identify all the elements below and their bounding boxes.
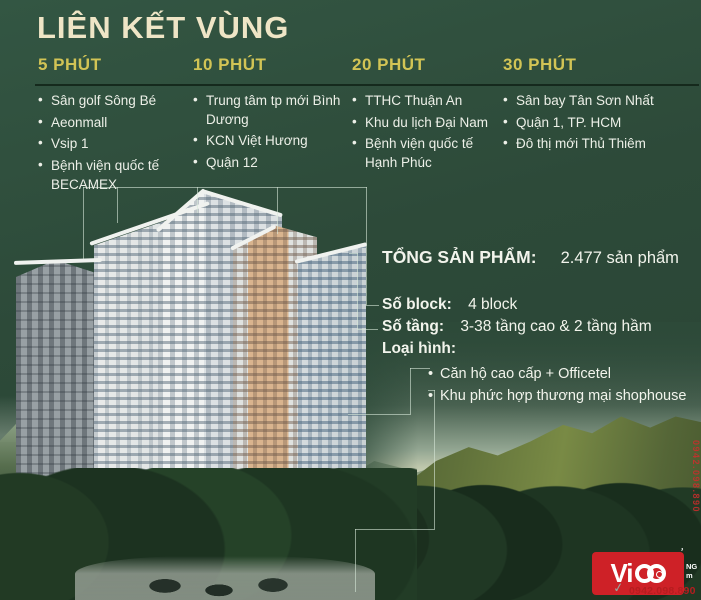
list-item: Khu phức hợp thương mại shophouse (428, 385, 694, 407)
phone-number: 0942.098.890 (629, 585, 696, 597)
column-list: Sân golf Sông Bé Aeonmall Vsip 1 Bệnh vi… (38, 92, 190, 194)
column-header: 30 PHÚT (503, 55, 699, 75)
project-summary-panel: TỔNG SẢN PHẨM: 2.477 sản phẩm Số block: … (382, 247, 694, 407)
list-item: Khu du lịch Đại Nam (352, 114, 502, 133)
column-header: 20 PHÚT (352, 55, 502, 75)
connector-line (357, 253, 358, 329)
travel-time-column-10min: 10 PHÚT Trung tâm tp mới Bình Dương KCN … (193, 55, 347, 176)
list-item: Quận 12 (193, 154, 347, 173)
list-item: Aeonmall (38, 114, 190, 133)
connector-line (366, 187, 367, 305)
total-products-value: 2.477 sản phẩm (561, 249, 679, 268)
property-type-label: Loại hình: (382, 340, 456, 357)
block-count-row: Số block: 4 block (382, 297, 694, 313)
list-item: Sân golf Sông Bé (38, 92, 190, 111)
travel-time-column-20min: 20 PHÚT TTHC Thuận An Khu du lịch Đại Na… (352, 55, 502, 176)
swoosh-icon: ✓ (612, 579, 625, 596)
column-list: Sân bay Tân Sơn Nhất Quận 1, TP. HCM Đô … (503, 92, 699, 154)
connector-line (83, 187, 84, 259)
travel-time-column-5min: 5 PHÚT Sân golf Sông Bé Aeonmall Vsip 1 … (38, 55, 190, 197)
clipped-side-text: NG m (686, 562, 701, 580)
connector-line (434, 390, 435, 529)
page-title: LIÊN KẾT VÙNG (37, 10, 289, 46)
travel-time-column-30min: 30 PHÚT Sân bay Tân Sơn Nhất Quận 1, TP.… (503, 55, 699, 157)
infographic-canvas: LIÊN KẾT VÙNG 5 PHÚT Sân golf Sông Bé Ae… (0, 0, 701, 600)
floor-count-row: Số tầng: 3-38 tầng cao & 2 tầng hầm (382, 319, 694, 335)
connector-line (366, 305, 379, 306)
connector-line (348, 414, 411, 415)
column-header: 5 PHÚT (38, 55, 190, 75)
list-item: KCN Việt Hương (193, 132, 347, 151)
connector-line (197, 187, 198, 213)
vico-rings-icon (635, 564, 666, 583)
column-header: 10 PHÚT (193, 55, 347, 75)
list-item: Đô thị mới Thủ Thiêm (503, 135, 699, 154)
block-count-label: Số block: (382, 296, 452, 313)
plaza-road (75, 556, 375, 600)
connector-line (355, 529, 435, 530)
total-products-label: TỔNG SẢN PHẨM: (382, 247, 537, 268)
list-item: Căn hộ cao cấp + Officetel (428, 363, 694, 385)
floor-count-label: Số tầng: (382, 318, 444, 335)
connector-line (355, 529, 356, 592)
connector-line (357, 329, 378, 330)
edge-phone-number: 0942.098.890 (691, 440, 701, 513)
block-count-value: 4 block (468, 296, 517, 313)
column-list: TTHC Thuận An Khu du lịch Đại Nam Bệnh v… (352, 92, 502, 173)
connector-line (277, 187, 278, 234)
list-item: TTHC Thuận An (352, 92, 502, 111)
list-item: Quận 1, TP. HCM (503, 114, 699, 133)
list-item: Vsip 1 (38, 135, 190, 154)
list-item: Bệnh viện quốc tế BECAMEX (38, 157, 190, 194)
list-item: Bệnh viện quốc tế Hạnh Phúc (352, 135, 502, 172)
total-products-row: TỔNG SẢN PHẨM: 2.477 sản phẩm (382, 247, 694, 268)
column-list: Trung tâm tp mới Bình Dương KCN Việt Hươ… (193, 92, 347, 173)
floor-count-value: 3-38 tầng cao & 2 tầng hầm (460, 318, 651, 335)
list-item: Trung tâm tp mới Bình Dương (193, 92, 347, 129)
property-type-row: Loại hình: (382, 341, 694, 357)
list-item: Sân bay Tân Sơn Nhất (503, 92, 699, 111)
property-type-list: Căn hộ cao cấp + Officetel Khu phức hợp … (428, 363, 694, 407)
